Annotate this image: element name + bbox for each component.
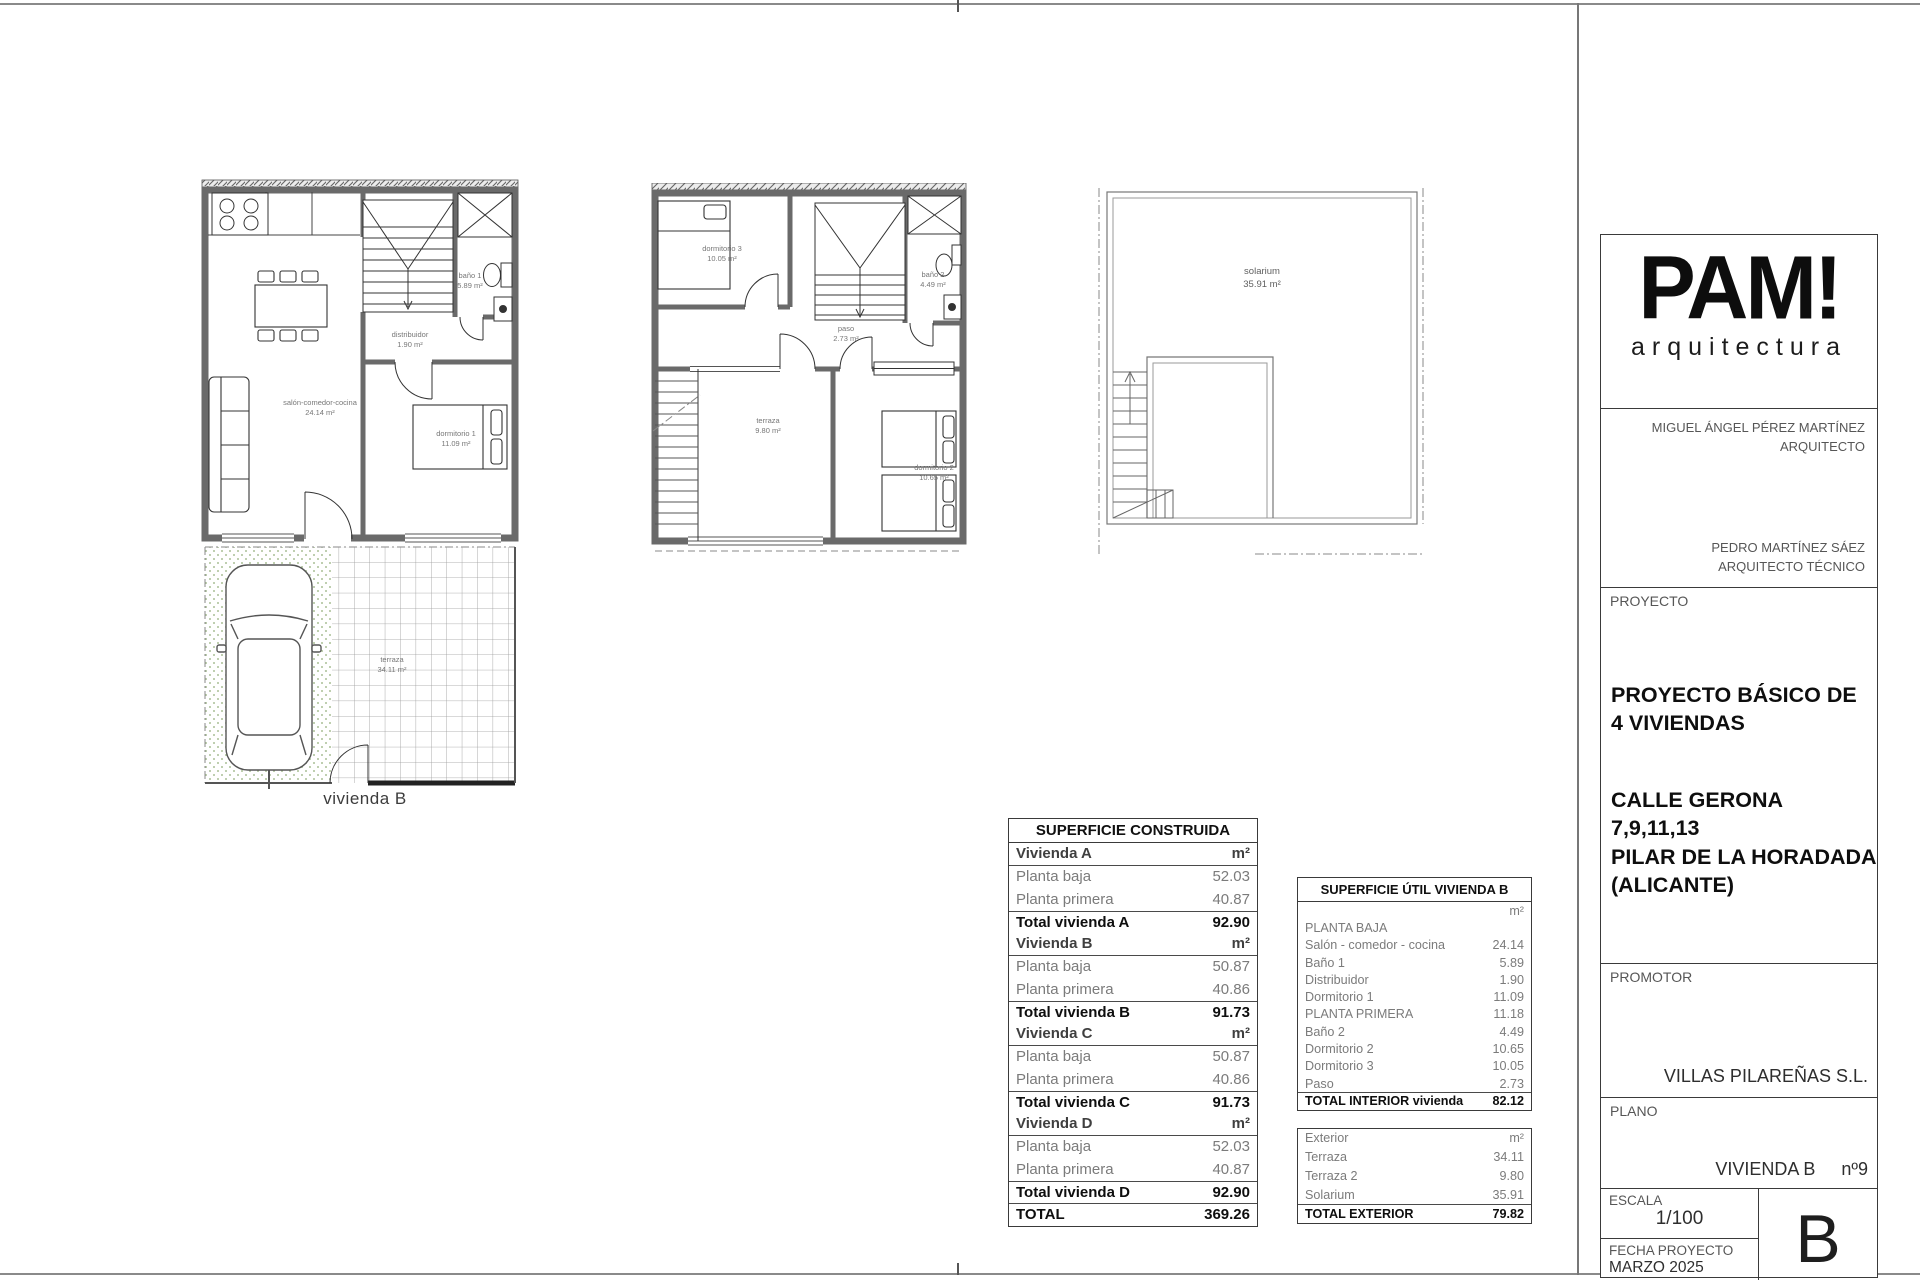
row-label: Planta baja xyxy=(1016,868,1091,885)
fecha-value: MARZO 2025 xyxy=(1601,1259,1758,1277)
table-row: Distribuidor 1.90 xyxy=(1298,971,1531,988)
promotor-value: VILLAS PILAREÑAS S.L. xyxy=(1664,1066,1868,1087)
row-label: Terraza 2 xyxy=(1305,1169,1358,1183)
table-row: Planta primera 40.87 xyxy=(1009,888,1257,911)
project-address-line: PILAR DE LA HORADADA xyxy=(1611,843,1877,871)
table-row: Terraza 34.11 xyxy=(1298,1148,1531,1167)
plano-section: PLANO VIVIENDA Bnº9 xyxy=(1601,1098,1877,1189)
row-value: 2.73 xyxy=(1499,1077,1524,1091)
table-row: Solarium 35.91 xyxy=(1298,1185,1531,1204)
room-label: solarium xyxy=(1244,266,1280,277)
room-area: 4.49 m² xyxy=(920,280,946,289)
row-label: Planta primera xyxy=(1016,1161,1114,1178)
table-row: Dormitorio 1 11.09 xyxy=(1298,988,1531,1005)
row-value: 52.03 xyxy=(1212,1138,1250,1155)
escala-label: ESCALA xyxy=(1601,1189,1758,1208)
pam-logo: PAM! xyxy=(1601,243,1877,333)
row-value: 9.80 xyxy=(1499,1169,1524,1183)
project-title-line: PROYECTO BÁSICO DE xyxy=(1611,681,1877,709)
room-area: 34.11 m² xyxy=(377,665,407,674)
dining-table-icon xyxy=(255,271,327,341)
superficie-util-table: SUPERFICIE ÚTIL VIVIENDA B m² PLANTA BAJ… xyxy=(1297,877,1532,1111)
stairs-icon xyxy=(1113,372,1173,518)
row-value: 40.87 xyxy=(1212,891,1250,908)
room-label: baño 1 xyxy=(459,271,482,280)
room-label: baño 2 xyxy=(922,270,945,279)
table-title: SUPERFICIE CONSTRUIDA xyxy=(1009,819,1257,843)
table-row: PLANTA PRIMERA 11.18 xyxy=(1298,1006,1531,1023)
row-value: 11.18 xyxy=(1493,1007,1524,1021)
row-value: 50.87 xyxy=(1212,1048,1250,1065)
row-value: 34.11 xyxy=(1493,1150,1524,1164)
ground-floor-plan: salón-comedor-cocina 24.14 m² distribuid… xyxy=(200,177,520,817)
row-value: m² xyxy=(1232,845,1250,862)
row-value: 369.26 xyxy=(1204,1206,1250,1223)
escala-value: 1/100 xyxy=(1601,1208,1758,1230)
row-label: Paso xyxy=(1305,1077,1334,1091)
table-row: Planta primera 40.87 xyxy=(1009,1158,1257,1181)
row-label: Solarium xyxy=(1305,1188,1355,1202)
row-value: m² xyxy=(1509,1131,1524,1145)
row-value: m² xyxy=(1509,904,1524,918)
plano-label: PLANO xyxy=(1601,1098,1877,1119)
room-label: terraza xyxy=(756,416,780,425)
fecha-cell: FECHA PROYECTO MARZO 2025 xyxy=(1601,1239,1759,1280)
row-value: 82.12 xyxy=(1492,1094,1524,1108)
table-row: TOTAL EXTERIOR 79.82 xyxy=(1298,1204,1531,1223)
row-label: TOTAL EXTERIOR xyxy=(1305,1207,1413,1221)
row-value: 92.90 xyxy=(1212,1184,1250,1201)
table-row: Total vivienda C 91.73 xyxy=(1009,1091,1257,1114)
logo-section: PAM! arquitectura xyxy=(1601,245,1877,409)
row-value: 11.09 xyxy=(1493,990,1524,1004)
drawing-sheet: salón-comedor-cocina 24.14 m² distribuid… xyxy=(0,0,1920,1280)
row-value: 50.87 xyxy=(1212,958,1250,975)
row-label: Dormitorio 1 xyxy=(1305,990,1374,1004)
room-label: terraza xyxy=(380,655,404,664)
table-row: Planta primera 40.86 xyxy=(1009,1068,1257,1091)
table-row: Planta baja 52.03 xyxy=(1009,866,1257,889)
page-border-top xyxy=(0,3,1920,5)
room-area: 24.14 m² xyxy=(305,408,335,417)
table-row: Total vivienda B 91.73 xyxy=(1009,1001,1257,1024)
row-label: Dormitorio 3 xyxy=(1305,1059,1374,1073)
promotor-label: PROMOTOR xyxy=(1601,964,1877,985)
table-row: Exterior m² xyxy=(1298,1129,1531,1148)
row-label: Total vivienda A xyxy=(1016,914,1129,931)
row-label: Planta primera xyxy=(1016,891,1114,908)
room-area: 10.65 m² xyxy=(919,473,949,482)
row-label: Planta baja xyxy=(1016,958,1091,975)
plano-value: VIVIENDA B xyxy=(1715,1159,1815,1179)
shower-icon xyxy=(908,196,961,234)
technical-architect-name: PEDRO MARTÍNEZ SÁEZ xyxy=(1613,539,1865,558)
sheet-letter: B xyxy=(1795,1200,1840,1278)
row-value: m² xyxy=(1232,1115,1250,1132)
fold-mark-top xyxy=(957,0,959,12)
wardrobe-icon xyxy=(874,362,954,375)
room-area: 11.09 m² xyxy=(441,439,471,448)
table-body: m² PLANTA BAJA Salón - comedor - cocina … xyxy=(1298,902,1531,1110)
sink-icon xyxy=(944,295,961,319)
row-label: Baño 2 xyxy=(1305,1025,1345,1039)
table-row: Planta primera 40.86 xyxy=(1009,978,1257,1001)
row-value: 24.14 xyxy=(1492,938,1524,952)
table-body: Exterior m² Terraza 34.11 Terraza 2 9.80… xyxy=(1298,1129,1531,1223)
sofa-icon xyxy=(209,377,249,512)
architect-name: MIGUEL ÁNGEL PÉREZ MARTÍNEZ xyxy=(1613,419,1865,438)
promotor-section: PROMOTOR VILLAS PILAREÑAS S.L. xyxy=(1601,964,1877,1098)
sink-icon xyxy=(494,297,512,321)
row-label: Planta baja xyxy=(1016,1138,1091,1155)
row-value: 92.90 xyxy=(1212,914,1250,931)
superficie-construida-table: SUPERFICIE CONSTRUIDA Vivienda A m² Plan… xyxy=(1008,818,1258,1227)
architect-role: ARQUITECTO xyxy=(1613,438,1865,457)
shower-icon xyxy=(458,193,512,237)
row-label: Dormitorio 2 xyxy=(1305,1042,1374,1056)
sheet-letter-cell: B xyxy=(1759,1189,1877,1280)
row-label: Total vivienda D xyxy=(1016,1184,1130,1201)
plano-number: nº9 xyxy=(1841,1159,1868,1179)
fold-mark-bottom xyxy=(957,1263,959,1275)
table-row: Baño 2 4.49 xyxy=(1298,1023,1531,1040)
row-label: Terraza xyxy=(1305,1150,1347,1164)
room-area: 2.73 m² xyxy=(833,334,859,343)
car-icon xyxy=(217,565,321,789)
room-label: paso xyxy=(838,324,854,333)
project-address-line: CALLE GERONA xyxy=(1611,786,1877,814)
row-label: PLANTA BAJA xyxy=(1305,921,1387,935)
room-label: dormitorio 1 xyxy=(436,429,476,438)
title-block: PAM! arquitectura MIGUEL ÁNGEL PÉREZ MAR… xyxy=(1600,234,1878,1278)
table-row: Dormitorio 3 10.05 xyxy=(1298,1058,1531,1075)
room-area: 1.90 m² xyxy=(397,340,423,349)
escala-cell: ESCALA 1/100 xyxy=(1601,1189,1759,1239)
terrace-tiles xyxy=(332,547,515,783)
row-value: 10.65 xyxy=(1492,1042,1524,1056)
superficie-util-exterior-table: Exterior m² Terraza 34.11 Terraza 2 9.80… xyxy=(1297,1128,1532,1224)
row-value: 52.03 xyxy=(1212,868,1250,885)
row-value: 40.86 xyxy=(1212,981,1250,998)
stairs-icon xyxy=(815,203,905,320)
row-label: Salón - comedor - cocina xyxy=(1305,938,1445,952)
table-row: Baño 1 5.89 xyxy=(1298,954,1531,971)
solarium-plan: solarium 35.91 m² xyxy=(1095,172,1425,572)
row-label: Planta primera xyxy=(1016,981,1114,998)
architects-section: MIGUEL ÁNGEL PÉREZ MARTÍNEZ ARQUITECTO P… xyxy=(1601,409,1877,588)
table-row: TOTAL INTERIOR vivienda 82.12 xyxy=(1298,1092,1531,1109)
row-value: m² xyxy=(1232,1025,1250,1042)
row-label: Total vivienda B xyxy=(1016,1004,1130,1021)
room-area: 5.89 m² xyxy=(457,281,483,290)
room-label: dormitorio 3 xyxy=(702,244,742,253)
project-address-line: (ALICANTE) xyxy=(1611,871,1877,899)
stairs-icon xyxy=(363,200,453,312)
row-label: Vivienda C xyxy=(1016,1025,1092,1042)
titleblock-margin-line xyxy=(1577,3,1579,1275)
stove-icon xyxy=(212,193,268,235)
row-label: Total vivienda C xyxy=(1016,1094,1130,1111)
row-value: 40.86 xyxy=(1212,1071,1250,1088)
row-value: 91.73 xyxy=(1212,1004,1250,1021)
table-title: SUPERFICIE ÚTIL VIVIENDA B xyxy=(1298,878,1531,902)
proyecto-section: PROYECTO PROYECTO BÁSICO DE 4 VIVIENDAS … xyxy=(1601,588,1877,964)
table-row: Planta baja 50.87 xyxy=(1009,956,1257,979)
first-floor-plan: dormitorio 3 10.05 m² baño 2 4.49 m² pas… xyxy=(650,183,970,573)
row-label: Baño 1 xyxy=(1305,956,1345,970)
project-address-line: 7,9,11,13 xyxy=(1611,814,1877,842)
row-value: 91.73 xyxy=(1212,1094,1250,1111)
table-row: TOTAL 369.26 xyxy=(1009,1203,1257,1226)
fecha-label: FECHA PROYECTO xyxy=(1601,1239,1758,1258)
cut-lines xyxy=(1099,188,1425,556)
proyecto-label: PROYECTO xyxy=(1601,588,1877,609)
table-row: m² xyxy=(1298,902,1531,919)
table-body: Vivienda A m² Planta baja 52.03 Planta p… xyxy=(1009,843,1257,1226)
room-area: 10.05 m² xyxy=(707,254,737,263)
table-row: Total vivienda A 92.90 xyxy=(1009,911,1257,934)
row-label: Vivienda A xyxy=(1016,845,1092,862)
row-value: 35.91 xyxy=(1492,1188,1524,1202)
row-label: Vivienda B xyxy=(1016,935,1092,952)
technical-architect-role: ARQUITECTO TÉCNICO xyxy=(1613,558,1865,577)
room-label: salón-comedor-cocina xyxy=(283,398,358,407)
table-row: Planta baja 50.87 xyxy=(1009,1046,1257,1069)
scale-date-section: ESCALA 1/100 B FECHA PROYECTO MARZO 2025 xyxy=(1601,1189,1877,1280)
parapet-walls xyxy=(1107,192,1417,524)
room-area: 9.80 m² xyxy=(755,426,781,435)
row-label: TOTAL xyxy=(1016,1206,1065,1223)
table-row: Total vivienda D 92.90 xyxy=(1009,1181,1257,1204)
row-label: Planta baja xyxy=(1016,1048,1091,1065)
row-value: 5.89 xyxy=(1499,956,1524,970)
toilet-icon xyxy=(484,263,513,287)
table-row: Vivienda B m² xyxy=(1009,933,1257,956)
plan-caption: vivienda B xyxy=(323,789,406,808)
row-label: Exterior xyxy=(1305,1131,1348,1145)
table-row: Salón - comedor - cocina 24.14 xyxy=(1298,937,1531,954)
room-label: distribuidor xyxy=(392,330,429,339)
row-value: 10.05 xyxy=(1492,1059,1524,1073)
table-row: Planta baja 52.03 xyxy=(1009,1136,1257,1159)
row-label: PLANTA PRIMERA xyxy=(1305,1007,1413,1021)
project-title-line: 4 VIVIENDAS xyxy=(1611,709,1877,737)
row-value: 1.90 xyxy=(1499,973,1524,987)
row-label: Distribuidor xyxy=(1305,973,1369,987)
row-value: 4.49 xyxy=(1499,1025,1524,1039)
table-row: PLANTA BAJA xyxy=(1298,919,1531,936)
table-row: Vivienda A m² xyxy=(1009,843,1257,866)
row-value: m² xyxy=(1232,935,1250,952)
row-label: Vivienda D xyxy=(1016,1115,1092,1132)
row-label: TOTAL INTERIOR vivienda xyxy=(1305,1094,1463,1108)
row-value: 79.82 xyxy=(1492,1207,1524,1221)
room-area: 35.91 m² xyxy=(1243,279,1281,290)
table-row: Dormitorio 2 10.65 xyxy=(1298,1040,1531,1057)
table-row: Paso 2.73 xyxy=(1298,1075,1531,1092)
row-label: Planta primera xyxy=(1016,1071,1114,1088)
room-label: dormitorio 2 xyxy=(914,463,954,472)
table-row: Vivienda C m² xyxy=(1009,1023,1257,1046)
table-row: Terraza 2 9.80 xyxy=(1298,1167,1531,1186)
row-value: 40.87 xyxy=(1212,1161,1250,1178)
table-row: Vivienda D m² xyxy=(1009,1113,1257,1136)
